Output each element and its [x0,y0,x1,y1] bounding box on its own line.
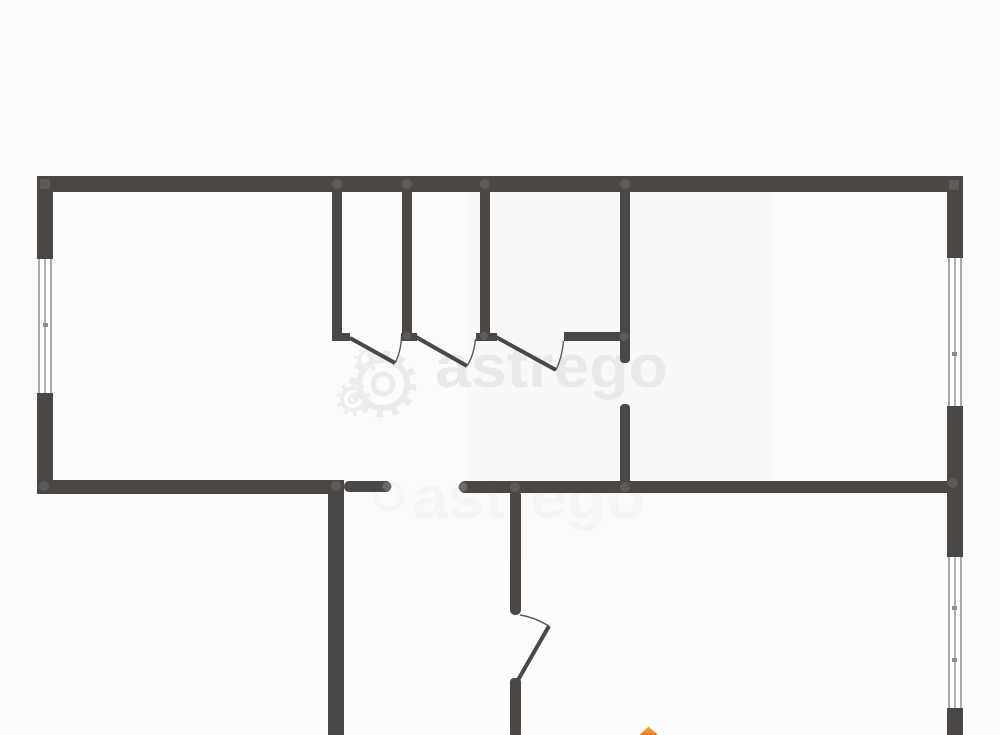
svg-text:astrego: astrego [412,464,645,531]
